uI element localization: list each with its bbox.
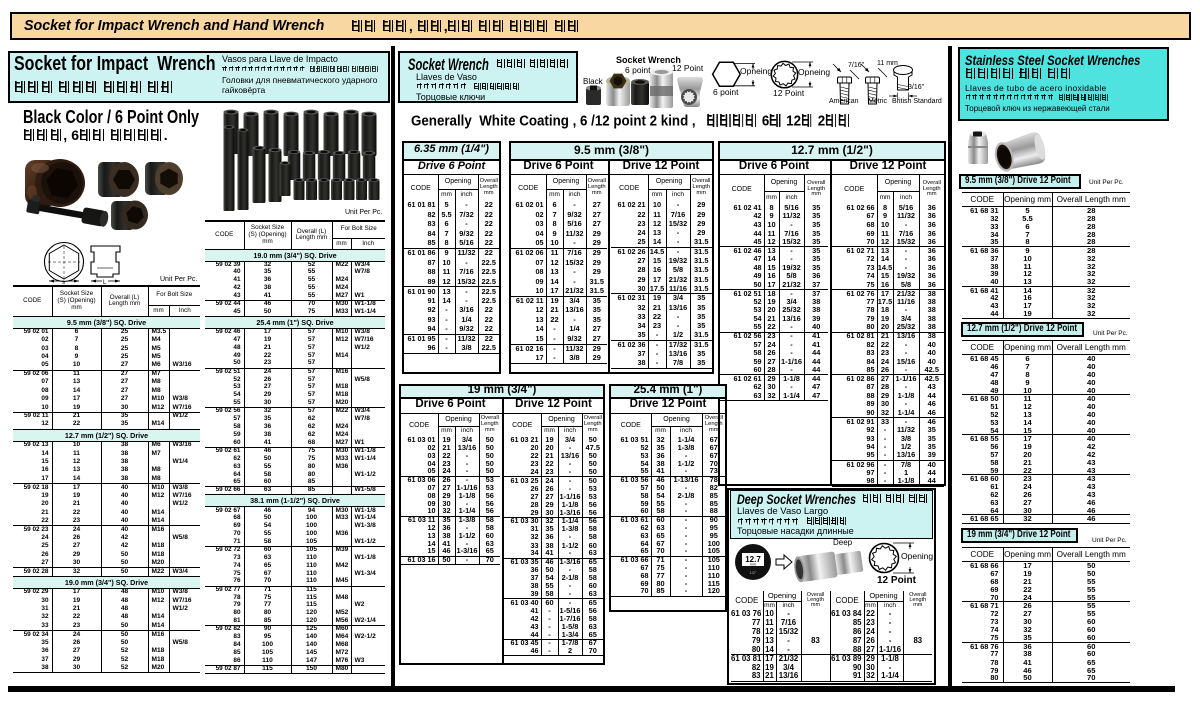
svg-text:1/2": 1/2"	[750, 570, 758, 575]
svg-text:mm: mm	[750, 563, 756, 567]
